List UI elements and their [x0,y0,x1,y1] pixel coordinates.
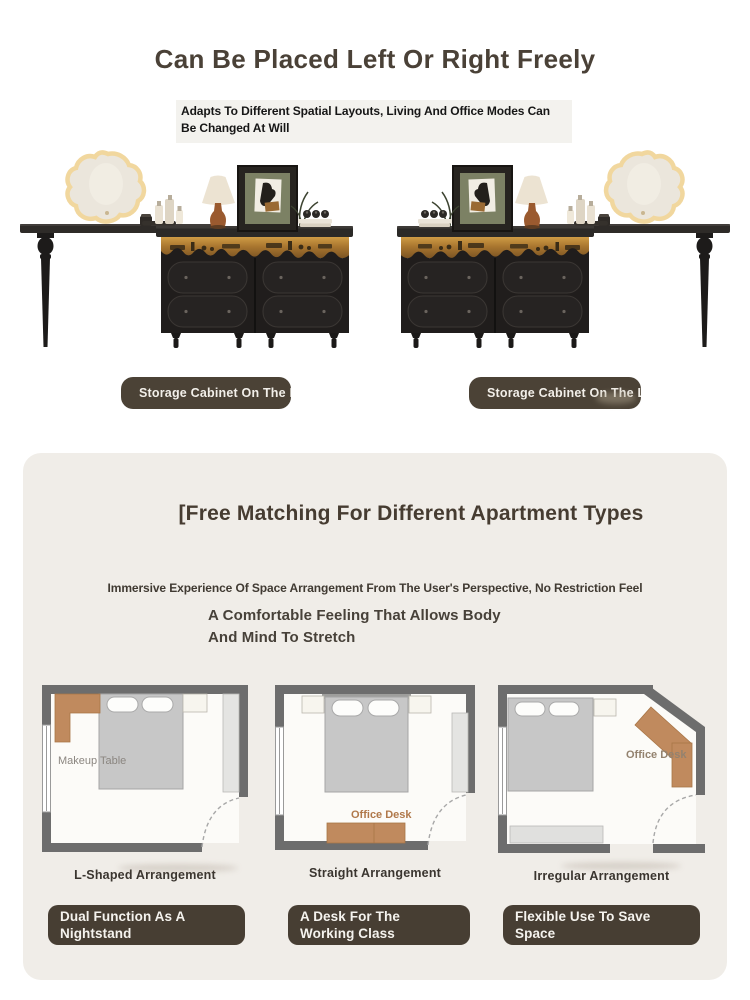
low-cabinet [510,826,603,843]
product-page: { "hero": { "title": "Can Be Placed Left… [0,0,750,1000]
floorplan-l-shaped: Makeup Table L-Shaped Arrangement [42,685,248,882]
apartment-types-card: [Free Matching For Different Apartment T… [23,453,727,980]
floorplan-l-shaped-drawing: Makeup Table [42,685,248,852]
makeup-table-label: Makeup Table [58,755,126,767]
picture-frame [238,166,297,231]
floorplan-irregular: Office Desk Irregular Arrangement [498,685,705,883]
nightstand [183,694,207,712]
wardrobe [452,713,468,792]
plan-caption: L-Shaped Arrangement [74,868,216,882]
plan-benefit-badge-1: Dual Function As A Nightstand [48,905,245,945]
plan-caption: Irregular Arrangement [534,869,670,883]
plan-benefit-badge-3: Flexible Use To Save Space [503,905,700,945]
cabinet-feet [171,333,339,348]
plan-caption: Straight Arrangement [309,866,441,880]
hero-badge-right-cabinet: Storage Cabinet On The Right [121,377,291,409]
hero-badge-left-cabinet: Storage Cabinet On The Left [469,377,641,409]
vanity-scene-right-cabinet-image [18,150,375,355]
wardrobe [223,694,239,792]
window [43,725,51,812]
floorplan-straight-drawing: Office Desk [275,685,475,850]
card-title: [Free Matching For Different Apartment T… [95,502,727,526]
vanity-scene-left-cabinet-image [375,150,732,355]
nightstand [594,699,616,716]
page-subtitle: Adapts To Different Spatial Layouts, Liv… [176,100,572,143]
floorplan-irregular-drawing: Office Desk [498,685,705,853]
card-lead-text: Immersive Experience Of Space Arrangemen… [23,581,727,595]
nightstand-left [302,696,324,713]
table-lamp [202,176,235,230]
storage-cabinet [156,226,353,348]
led-mirror [68,152,144,221]
plan-benefit-badge-2: A Desk For The Working Class [288,905,470,945]
office-desk-label: Office Desk [626,749,687,761]
sublead-line2: And Mind To Stretch [208,629,355,646]
books-and-jars [298,210,332,227]
office-desk-shape [327,823,405,843]
nightstand-right [409,696,431,713]
sublead-line1: A Comfortable Feeling That Allows Body [208,607,501,624]
cosmetics [140,195,183,226]
page-title: Can Be Placed Left Or Right Freely [0,44,750,75]
window [499,727,507,815]
card-sublead-text: A Comfortable Feeling That Allows Body A… [208,605,501,649]
office-desk-label: Office Desk [351,809,412,821]
floorplan-straight: Office Desk Straight Arrangement [275,685,475,880]
window [276,727,284,815]
